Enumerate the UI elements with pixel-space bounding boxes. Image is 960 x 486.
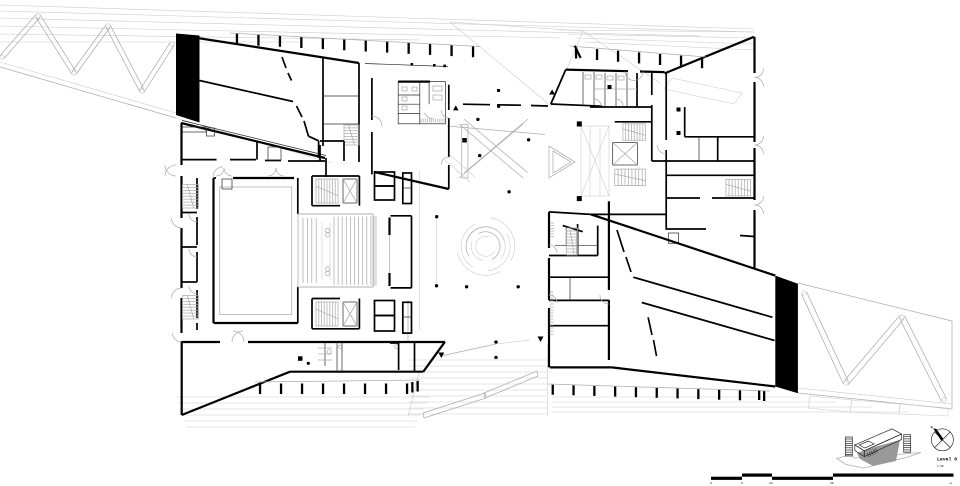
svg-text:5: 5 (741, 482, 743, 485)
svg-text:0: 0 (710, 482, 712, 485)
svg-text:m: m (950, 482, 952, 485)
svg-text:10: 10 (769, 482, 773, 485)
svg-text:20: 20 (830, 482, 834, 485)
svg-text:Level 0: Level 0 (937, 457, 957, 463)
svg-text:1:50: 1:50 (937, 465, 944, 468)
